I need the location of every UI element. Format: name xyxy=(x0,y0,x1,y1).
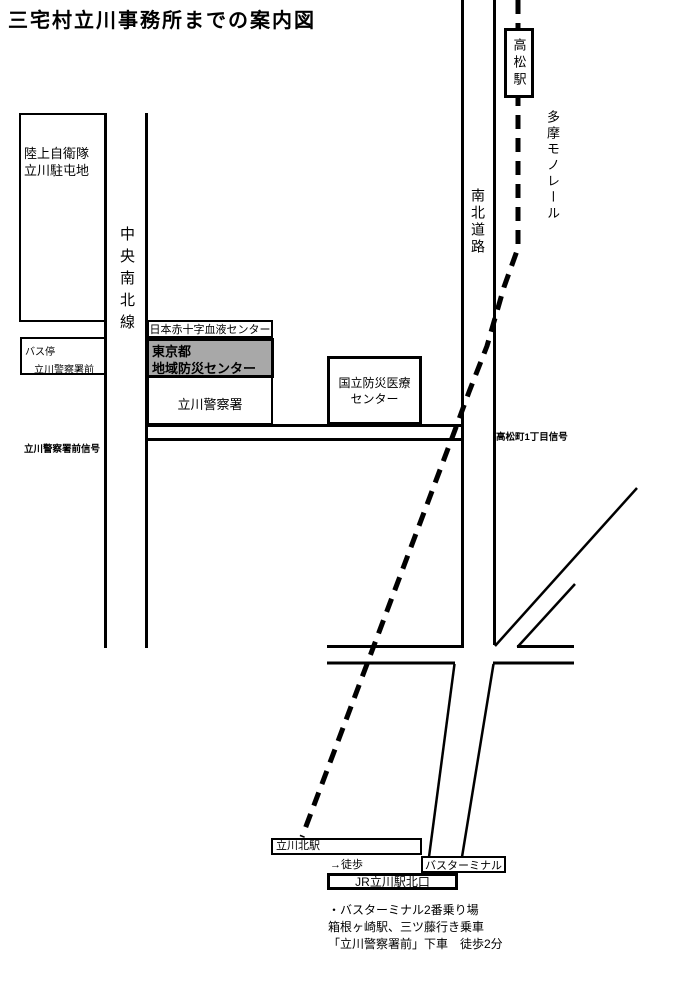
bus-terminal-box: バスターミナル xyxy=(421,856,506,873)
jr-north-exit-label: JR立川駅北口 xyxy=(355,873,430,890)
national-medical-label-line1: 国立防災医療 xyxy=(338,375,410,391)
takamatsu-station-label: 高松駅 xyxy=(510,38,529,89)
road-label-nanboku-road: 南北道路 xyxy=(468,188,488,256)
garrison-label-line2: 立川駐屯地 xyxy=(24,162,104,179)
national-medical-center-box: 国立防災医療 センター xyxy=(327,356,422,425)
access-note-line2: 箱根ヶ崎駅、三ツ藤行き乗車 xyxy=(328,919,503,936)
guide-map: 三宅村立川事務所までの案内図 中央南北線 南北道路 多摩モノレール 高松駅 陸上… xyxy=(0,0,700,986)
road-diagonal-long xyxy=(495,488,637,646)
access-note-line3: 「立川警察署前」下車 徒歩2分 xyxy=(328,936,503,953)
bus-stop-box: バス停 立川警察署前 xyxy=(20,337,106,375)
jr-north-exit-box: JR立川駅北口 xyxy=(327,873,458,890)
national-medical-label-line2: センター xyxy=(350,391,398,407)
road-station-left-line xyxy=(429,664,455,857)
bus-stop-name: 立川警察署前 xyxy=(34,361,104,376)
police-front-signal-label: 立川警察署前信号 xyxy=(24,441,100,455)
road-station-right-line xyxy=(462,664,494,857)
bus-terminal-label: バスターミナル xyxy=(425,857,502,873)
police-station-label: 立川警察署 xyxy=(149,394,271,413)
garrison-label: 陸上自衛隊 立川駐屯地 xyxy=(24,145,104,179)
access-notes: ・バスターミナル2番乗り場 箱根ヶ崎駅、三ツ藤行き乗車 「立川警察署前」下車 徒… xyxy=(328,902,503,953)
road-label-chuo-nanboku-line: 中央南北線 xyxy=(116,226,137,336)
rail-label-tama-monorail: 多摩モノレール xyxy=(543,110,562,222)
disaster-center-label-line1: 東京都 xyxy=(152,343,271,360)
garrison-box: 陸上自衛隊 立川駐屯地 xyxy=(19,113,106,322)
road-diagonal-short xyxy=(518,584,576,647)
disaster-center-label-line2: 地域防災センター xyxy=(152,360,271,377)
disaster-center-box: 東京都 地域防災センター xyxy=(146,338,274,378)
takamatsu-station-box: 高松駅 xyxy=(504,28,534,98)
tachikawa-kita-station-box: 立川北駅 xyxy=(271,838,422,855)
blood-center-box: 日本赤十字血液センター xyxy=(147,320,273,338)
walk-label: →徒歩 xyxy=(330,856,363,872)
access-note-line1: ・バスターミナル2番乗り場 xyxy=(328,902,503,919)
bus-stop-label: バス停 xyxy=(25,343,104,358)
page-title: 三宅村立川事務所までの案内図 xyxy=(8,4,316,33)
blood-center-label: 日本赤十字血液センター xyxy=(150,321,271,337)
takamatsucho-signal-label: 高松町1丁目信号 xyxy=(496,429,568,443)
garrison-label-line1: 陸上自衛隊 xyxy=(24,145,104,162)
tachikawa-kita-station-label: 立川北駅 xyxy=(276,840,320,852)
